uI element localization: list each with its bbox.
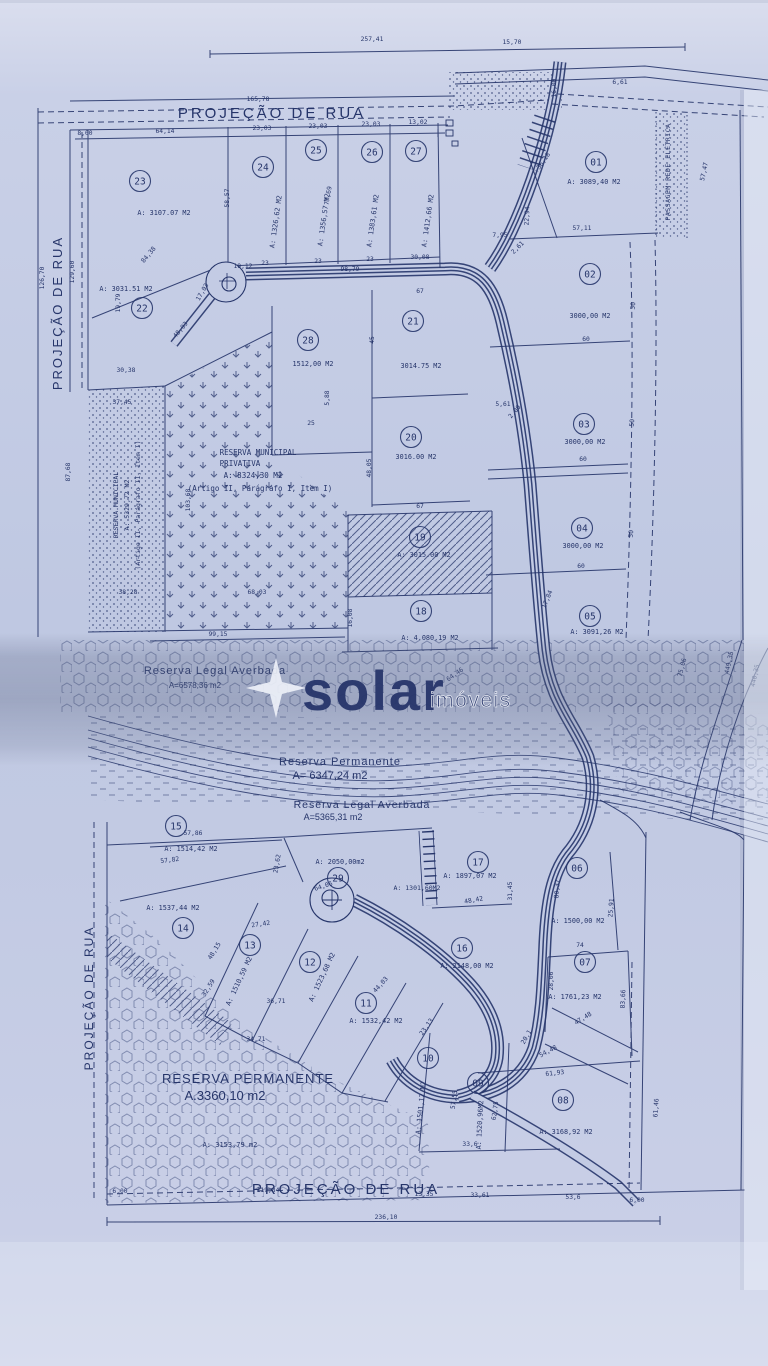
dimension-label: 48,05 bbox=[366, 458, 373, 477]
dimension-label: 60 bbox=[579, 456, 587, 463]
lot-area-label: A: 3168,92 M2 bbox=[539, 1128, 592, 1136]
dimension-label: 30,08 bbox=[411, 254, 430, 261]
dimension-label: 257,41 bbox=[361, 36, 384, 43]
reserve-text-line: RESERVA MUNICIPAL bbox=[220, 448, 297, 457]
area-extra-label: A: 3153,79 m2 bbox=[203, 1141, 258, 1149]
lot-area-label: 3014.75 M2 bbox=[401, 362, 442, 370]
dimension-label: 53,6 bbox=[565, 1194, 580, 1201]
lot-number: 15 bbox=[170, 821, 181, 832]
dimension-label: 36,71 bbox=[267, 998, 286, 1005]
dimension-label: 50 bbox=[629, 419, 637, 427]
dimension-label: 5,61 bbox=[495, 401, 510, 408]
lot-number: 03 bbox=[578, 419, 589, 430]
dimension-label: 19,79 bbox=[115, 293, 122, 312]
dimension-label: 57,86 bbox=[184, 830, 203, 837]
dimension-label: 80,37 bbox=[553, 879, 561, 899]
lot-number: 27 bbox=[410, 146, 421, 157]
lot-number: 22 bbox=[136, 303, 147, 314]
lot-number: 09 bbox=[472, 1078, 484, 1089]
lot-number: 29 bbox=[332, 873, 344, 884]
dimension-label: 67 bbox=[416, 288, 424, 295]
dimension-label: 25,91 bbox=[607, 898, 615, 918]
dimension-label: 15,70 bbox=[503, 39, 522, 46]
lot-area-label: A: 3107.07 M2 bbox=[137, 209, 190, 217]
dimension-label: 98,79 bbox=[341, 266, 360, 273]
area-strip-lot-label: A: 1301,60M2 bbox=[394, 884, 441, 892]
street-label-top: PROJEÇÃO DE RUA bbox=[178, 105, 366, 122]
lot-area-label: A: 1897,07 M2 bbox=[443, 872, 496, 880]
watermark-suffix: imóveis bbox=[430, 689, 512, 712]
dimension-label: 30,38 bbox=[117, 367, 136, 374]
lot-area-label: A: 3031.51 M2 bbox=[99, 285, 152, 293]
dimension-label: 50 bbox=[630, 302, 638, 310]
dimension-label: 23,03 bbox=[253, 125, 272, 132]
dimension-label: 6,61 bbox=[612, 79, 627, 86]
dimension-label: 23 bbox=[314, 258, 322, 265]
stipple-patch-top bbox=[448, 72, 562, 110]
dimension-label: 22,94 bbox=[524, 206, 532, 225]
dimension-label: 61,46 bbox=[652, 1098, 660, 1118]
lot-area-label: A: 1537,44 M2 bbox=[146, 904, 199, 912]
dimension-label: 8,00 bbox=[77, 130, 92, 137]
dimension-label: 38,28 bbox=[119, 589, 138, 596]
lot-area-label: 3000,00 M2 bbox=[563, 542, 604, 550]
lot-area-label: A: 1532,42 M2 bbox=[349, 1017, 402, 1025]
lot-number: 25 bbox=[310, 145, 321, 156]
subdivision-plan-drawing: 01A: 3089,40 M2023000,00 M2033000,00 M20… bbox=[0, 0, 768, 1366]
reserve-text-line: Reserva Legal Averbada bbox=[294, 799, 431, 811]
dimension-label: 64,14 bbox=[156, 128, 175, 135]
dimension-label: 67 bbox=[416, 503, 424, 510]
dimension-label: 7,95 bbox=[492, 232, 507, 239]
lot-number: 21 bbox=[407, 316, 419, 327]
lot-area-label: A: 1761,23 M2 bbox=[548, 993, 601, 1001]
dimension-label: 37,45 bbox=[113, 399, 132, 406]
reserve-text-line: RESERVA MUNICIPAL bbox=[112, 472, 120, 539]
dimension-label: 33,6 bbox=[462, 1141, 477, 1148]
lot-area-label: 3000,00 M2 bbox=[570, 312, 611, 320]
lot-area-label: A: 2148,00 M2 bbox=[440, 962, 493, 970]
dimension-label: 57,11 bbox=[573, 225, 592, 232]
lot-number: 24 bbox=[257, 162, 269, 173]
lot-number: 14 bbox=[177, 923, 189, 934]
dimension-label: 6,00 bbox=[629, 1197, 644, 1204]
lot-area-label: 1512,00 M2 bbox=[293, 360, 334, 368]
dimension-label: 23 bbox=[261, 260, 269, 267]
lot-number: 07 bbox=[579, 957, 590, 968]
lot-number: 10 bbox=[422, 1053, 434, 1064]
lot-number: 18 bbox=[415, 606, 427, 617]
lot-number: 19 bbox=[414, 532, 426, 543]
dimension-label: 6,00 bbox=[112, 1188, 127, 1195]
dimension-label: 19,12 bbox=[234, 263, 253, 270]
dimension-label: 58,57 bbox=[224, 188, 231, 207]
lot-number: 13 bbox=[244, 940, 255, 951]
dimension-label: 165,78 bbox=[247, 96, 270, 103]
lot-area-label: A: 3015.00 M2 bbox=[397, 551, 450, 559]
easement-label: PASSAGEM REDE ELÉTRICA bbox=[663, 123, 672, 220]
lot-number: 08 bbox=[557, 1095, 569, 1106]
dimension-label: 236,10 bbox=[375, 1214, 398, 1221]
lot-number: 01 bbox=[590, 157, 602, 168]
dimension-label: 60 bbox=[582, 336, 590, 343]
dimension-label: 74 bbox=[576, 942, 584, 949]
scanned-plan-page: 01A: 3089,40 M2023000,00 M2033000,00 M20… bbox=[0, 0, 768, 1366]
lot-number: 20 bbox=[405, 432, 417, 443]
dimension-label: 16,08 bbox=[347, 608, 354, 627]
street-label-bottom: PROJEÇÃO DE RUA bbox=[252, 1181, 440, 1198]
lot-number: 11 bbox=[360, 998, 372, 1009]
dimension-label: 45 bbox=[369, 336, 376, 344]
dimension-label: 31,45 bbox=[507, 881, 514, 900]
street-label-left-lower: PROJEÇÃO DE RUA bbox=[82, 926, 96, 1071]
lot-area-label: A: 1514,42 M2 bbox=[164, 845, 217, 853]
lot-number: 23 bbox=[134, 176, 145, 187]
reserve-text-line: RESERVA PERMANENTE bbox=[162, 1071, 334, 1086]
lot-number: 04 bbox=[576, 523, 588, 534]
dimension-label: 60 bbox=[577, 563, 585, 570]
dimension-label: 23 bbox=[366, 256, 374, 263]
dimension-label: 25 bbox=[307, 420, 315, 427]
reserve-text-line: A.3360,10 m2 bbox=[185, 1088, 266, 1103]
dimension-label: 23,03 bbox=[309, 123, 328, 130]
reserve-text-line: PRIVATIVA bbox=[220, 459, 261, 468]
dimension-label: 16,00 bbox=[551, 78, 558, 97]
dimension-label: 23,03 bbox=[362, 121, 381, 128]
lot-number: 17 bbox=[472, 857, 483, 868]
lot-number: 26 bbox=[366, 147, 378, 158]
lot-area-label: 3016.00 M2 bbox=[396, 453, 437, 461]
lot-number: 05 bbox=[584, 611, 595, 622]
lot-number: 02 bbox=[584, 269, 595, 280]
dimension-label: 68,03 bbox=[248, 589, 267, 596]
reserve-text-line: A: 5329,72 M2 bbox=[123, 479, 131, 530]
lot-number: 12 bbox=[304, 957, 315, 968]
dimension-label: 83,66 bbox=[620, 989, 628, 1008]
dimension-label: 50 bbox=[628, 530, 636, 538]
lot-area-label: 3000,00 M2 bbox=[565, 438, 606, 446]
street-label-left-upper: PROJEÇÃO DE RUA bbox=[50, 236, 65, 390]
lot-number: 06 bbox=[571, 863, 583, 874]
reserve-text-line: A: 8324,30 M2 bbox=[224, 471, 283, 480]
reserve-text-line: (Artigo II, Parágrafo II, Item I) bbox=[134, 440, 142, 569]
lot-number: 28 bbox=[302, 335, 314, 346]
dimension-label: 126,70 bbox=[39, 266, 46, 289]
dimension-label: 13,02 bbox=[409, 119, 428, 126]
dimension-label: 129,60 bbox=[69, 260, 76, 283]
dimension-label: 5,88 bbox=[324, 390, 331, 405]
lot-area-label: A: 1500,00 M2 bbox=[551, 917, 604, 925]
dimension-label: 34,71 bbox=[247, 1036, 266, 1043]
lot-number: 16 bbox=[456, 943, 468, 954]
watermark-brand: solar bbox=[302, 659, 446, 722]
reserve-text-line: A=5365,31 m2 bbox=[304, 812, 363, 822]
lot-area-label: A: 3089,40 M2 bbox=[567, 178, 620, 186]
dimension-label: 28,06 bbox=[548, 971, 555, 990]
dimension-label: 33,61 bbox=[471, 1192, 490, 1199]
reserve-text-line: (Artigo II, Parágrafo I, Item I) bbox=[188, 484, 333, 493]
reserve-text-line: A= 6347,24 m2 bbox=[293, 770, 368, 782]
dimension-label: 87,68 bbox=[65, 462, 72, 481]
lot-area-label: A: 2050,00m2 bbox=[315, 858, 364, 866]
